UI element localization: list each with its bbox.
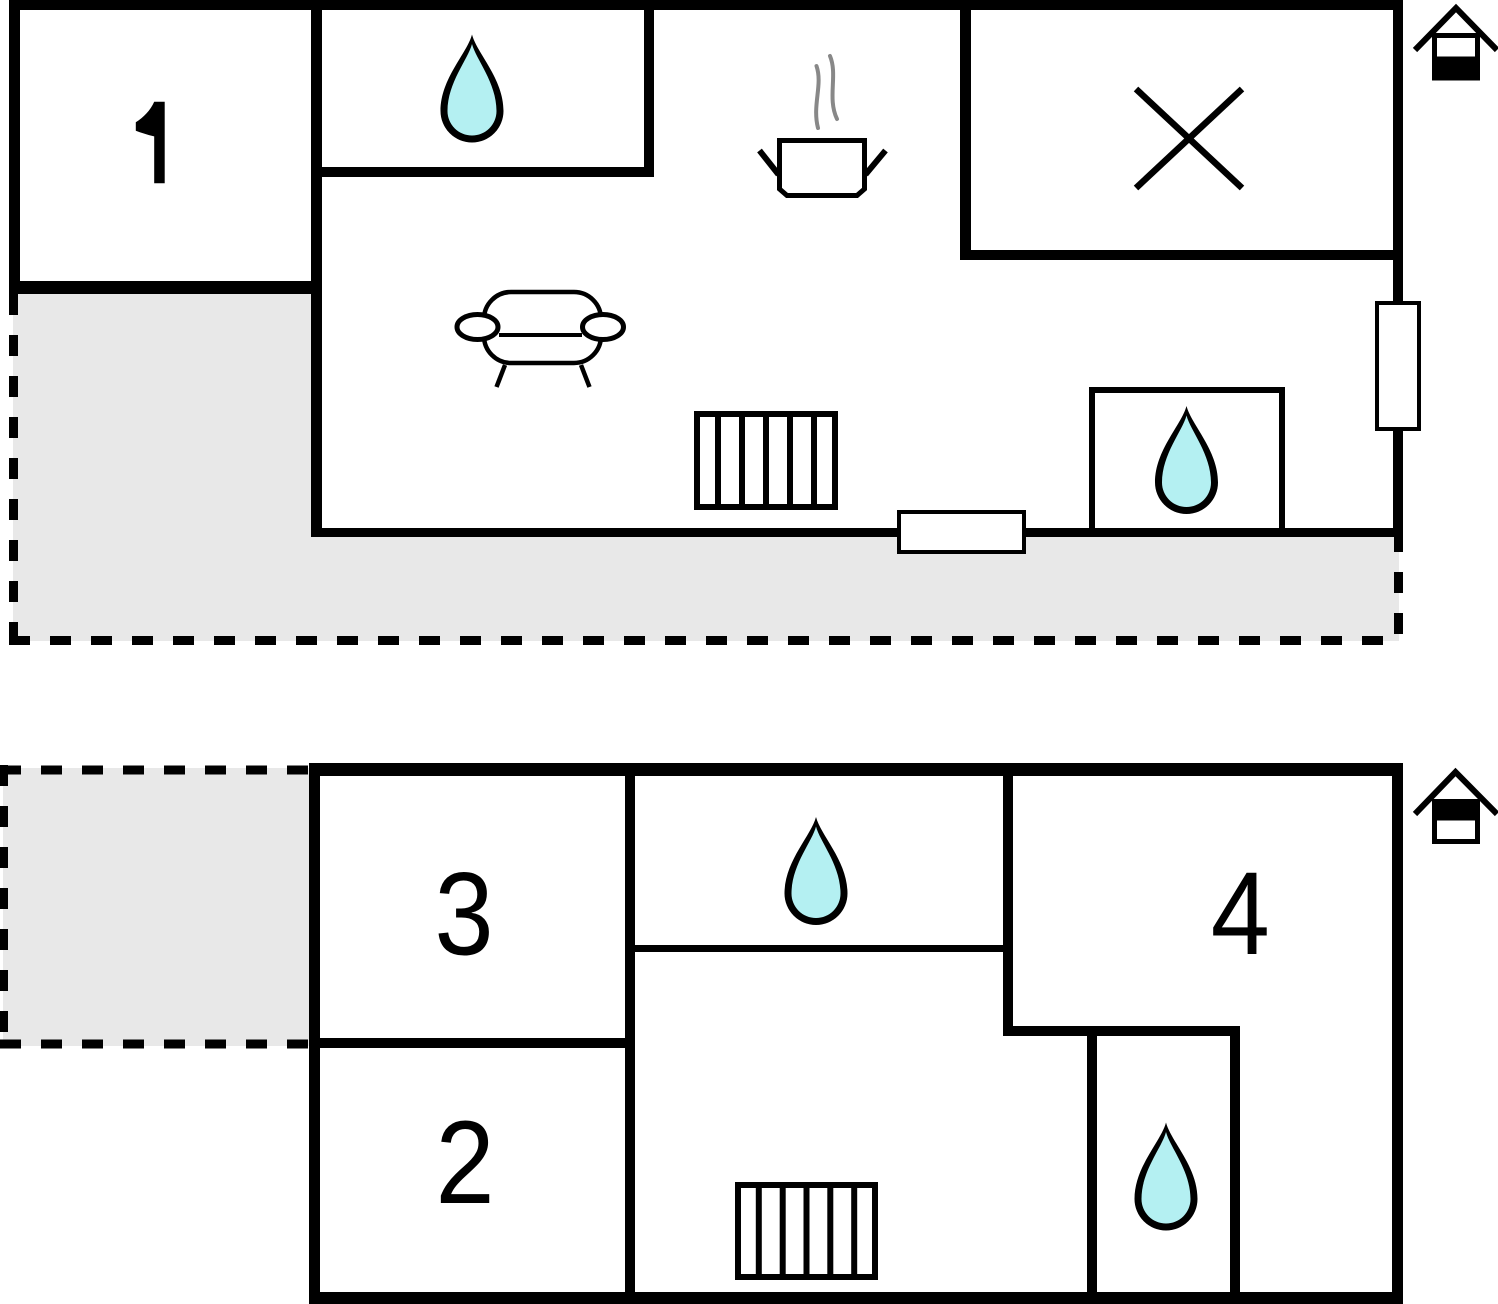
svg-text:2: 2 [435,1096,494,1228]
svg-text:3: 3 [434,847,493,979]
svg-text:4: 4 [1211,847,1270,979]
